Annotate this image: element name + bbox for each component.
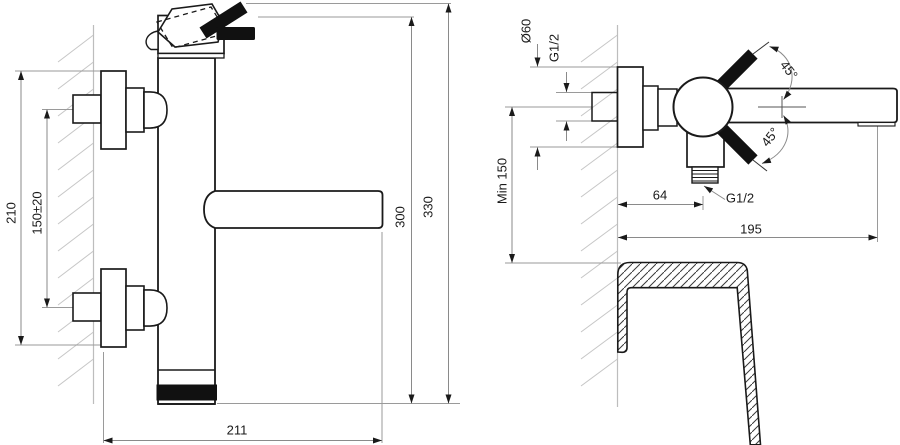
lever-horizontal [217, 27, 256, 40]
dim-label-inlet-thread: G1/2 [548, 34, 561, 62]
faucet-dimension-drawing [0, 0, 900, 445]
spout-front [204, 191, 383, 228]
dim-label-escutcheon-diameter: Ø60 [520, 19, 533, 44]
side-view [505, 25, 897, 445]
dim-label-spout-projection: 195 [740, 223, 762, 236]
upper-connector-dome [144, 92, 167, 128]
dim-label-outlet-offset: 64 [653, 189, 667, 202]
wall-hatching-side [581, 35, 618, 386]
knurled-ring [157, 385, 217, 400]
handle-axis-ext-upper [753, 42, 769, 54]
escutcheon-side [618, 67, 644, 147]
dim-label-total-height: 330 [422, 196, 435, 218]
lower-connector-dome [144, 290, 167, 326]
dim-label-body-height: 300 [394, 206, 407, 228]
neck-ring-1 [643, 86, 658, 130]
handle-axis-ext-lower [753, 160, 767, 171]
aerator-lip [858, 123, 895, 127]
threaded-nipple [692, 167, 718, 183]
dim-label-inlet-spacing: 150±20 [31, 191, 44, 234]
handle-side-cap [146, 31, 158, 50]
handle-upper-45 [717, 49, 757, 89]
wall-inlet-pipe [592, 93, 618, 122]
dim-label-escutcheon-span: 210 [5, 202, 18, 224]
outlet-thread-leader [704, 186, 725, 200]
dim-label-min-height: Min 150 [496, 158, 509, 204]
tub-rim-section [618, 263, 761, 445]
dim-label-outlet-thread: G1/2 [726, 192, 754, 205]
wall-hatching-front [58, 35, 94, 386]
dim-label-spout-reach: 211 [227, 424, 248, 437]
head-base-ring [158, 54, 224, 59]
valve-body-circle [674, 78, 733, 137]
technical-drawing-canvas: 210 150±20 300 330 211 Ø60 G1/2 Min 150 … [0, 0, 900, 445]
